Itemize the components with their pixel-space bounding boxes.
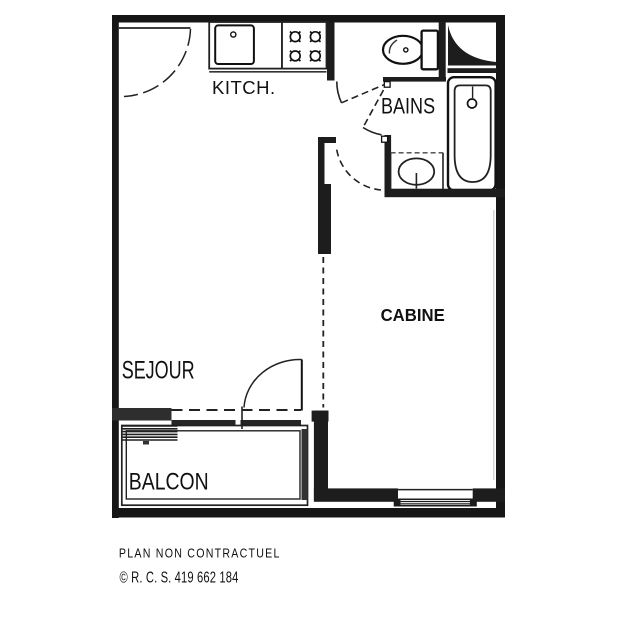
svg-text:BALCON: BALCON [129,468,209,495]
svg-text:SEJOUR: SEJOUR [122,356,195,385]
svg-text:PLAN NON CONTRACTUEL: PLAN NON CONTRACTUEL [119,545,281,560]
svg-text:© R. C. S. 419 662 184: © R. C. S. 419 662 184 [120,567,239,586]
svg-text:KITCH.: KITCH. [212,77,276,98]
svg-text:CABINE: CABINE [381,304,445,325]
svg-text:BAINS: BAINS [381,95,435,119]
